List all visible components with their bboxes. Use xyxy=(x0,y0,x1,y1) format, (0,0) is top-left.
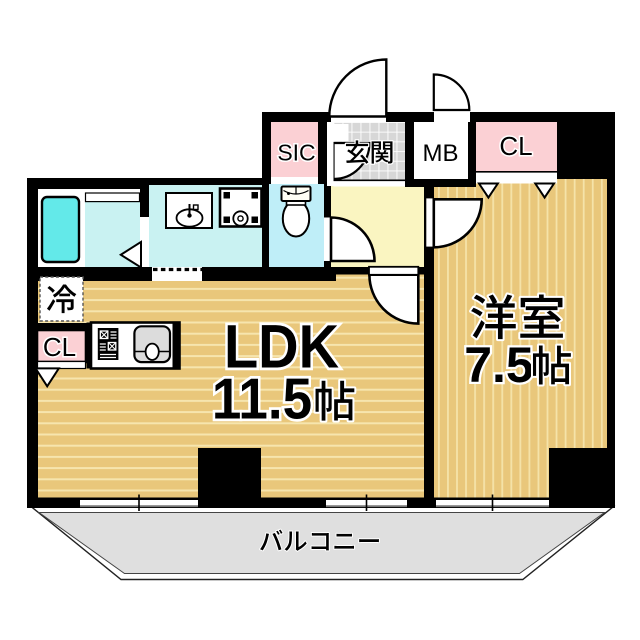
svg-text:SIC: SIC xyxy=(277,140,315,166)
svg-text:MB: MB xyxy=(423,140,459,167)
svg-text:7.5: 7.5 xyxy=(464,337,534,393)
svg-text:CL: CL xyxy=(43,332,76,362)
svg-text:11.5: 11.5 xyxy=(212,367,312,431)
svg-text:CL: CL xyxy=(499,131,532,161)
